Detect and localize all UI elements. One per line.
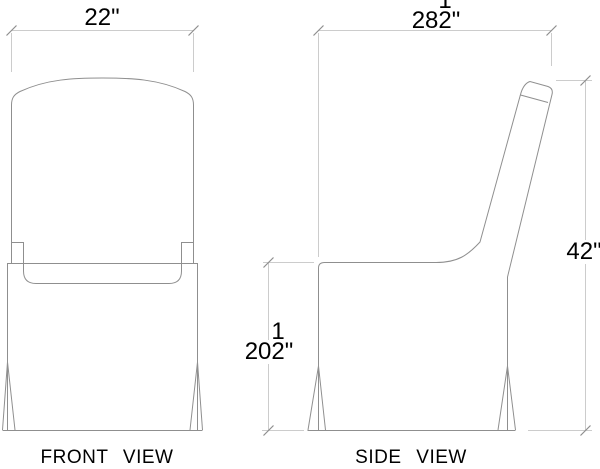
front-view-label: FRONT VIEW [39, 448, 176, 469]
front-seat-cushion [24, 263, 182, 284]
dim-fraction-num: 1 [270, 324, 285, 340]
dimension-label-seat-height: 2021" [242, 340, 297, 364]
dim-unit: " [285, 338, 294, 365]
technical-drawing-canvas: 22" 2821" 42" 2021" FRONT VIEW SIDE VIEW [0, 0, 600, 469]
dimension-ticks [7, 26, 591, 436]
dim-unit: " [593, 238, 600, 265]
dim-fraction: 21 [271, 340, 284, 364]
dim-value: 22 [84, 4, 111, 31]
dimension-label-back-width: 22" [84, 6, 119, 30]
dim-fraction: 21 [438, 9, 451, 33]
front-skirt-pleats [3, 362, 203, 430]
dimension-lines [12, 31, 593, 431]
front-back-outline [12, 78, 194, 263]
drawing-linework [0, 0, 600, 469]
dim-fraction-num: 1 [437, 0, 452, 9]
dim-value: 28 [412, 7, 439, 34]
side-view-label: SIDE VIEW [353, 448, 469, 469]
dim-value: 20 [245, 338, 272, 365]
ext-lines-overall-depth [319, 33, 552, 257]
side-back-cap-seam [521, 95, 549, 103]
dim-value: 42 [566, 238, 593, 265]
ext-lines-back-width [12, 33, 194, 72]
front-view-linework [3, 78, 203, 431]
side-view-linework [308, 82, 553, 431]
dimension-label-overall-depth: 2821" [412, 9, 461, 33]
front-skirt-sides [8, 263, 198, 430]
front-back-post-notches [12, 243, 194, 264]
dim-unit: " [452, 7, 461, 34]
dim-unit: " [111, 4, 120, 31]
side-body-outline [319, 82, 553, 431]
dimension-label-overall-height: 42" [563, 240, 600, 264]
side-skirt-pleats [308, 366, 516, 430]
